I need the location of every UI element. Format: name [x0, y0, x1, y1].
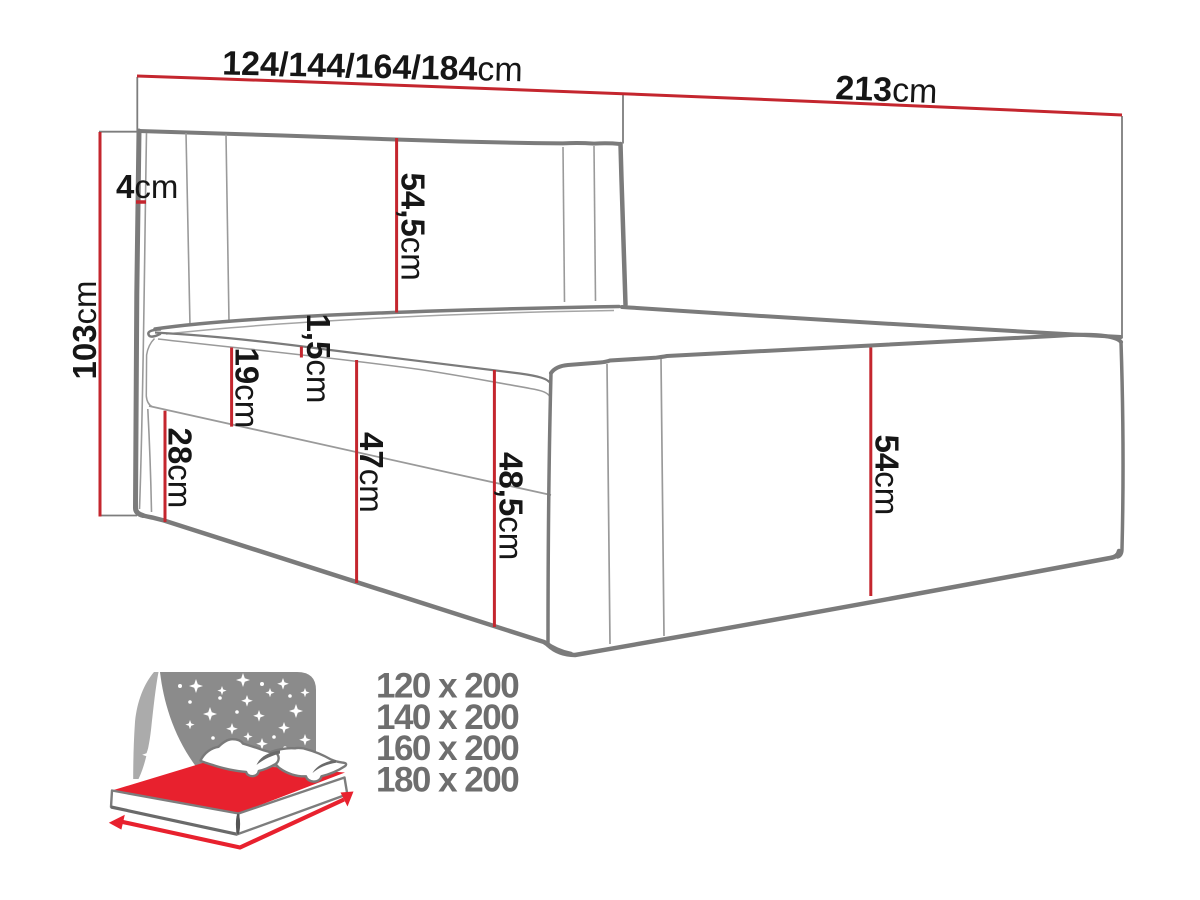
svg-text:213cm: 213cm: [835, 69, 939, 111]
svg-text:103cm: 103cm: [66, 280, 103, 379]
svg-text:180 x 200: 180 x 200: [376, 760, 519, 799]
svg-text:28cm: 28cm: [162, 428, 199, 509]
svg-text:54,5cm: 54,5cm: [395, 173, 432, 281]
svg-text:54cm: 54cm: [869, 435, 906, 516]
svg-text:124/144/164/184cm: 124/144/164/184cm: [222, 45, 523, 90]
svg-text:47cm: 47cm: [353, 432, 390, 513]
svg-text:4cm: 4cm: [116, 168, 178, 205]
svg-text:1,5cm: 1,5cm: [300, 314, 337, 404]
svg-text:19cm: 19cm: [229, 348, 266, 429]
svg-text:48,5cm: 48,5cm: [493, 452, 530, 560]
